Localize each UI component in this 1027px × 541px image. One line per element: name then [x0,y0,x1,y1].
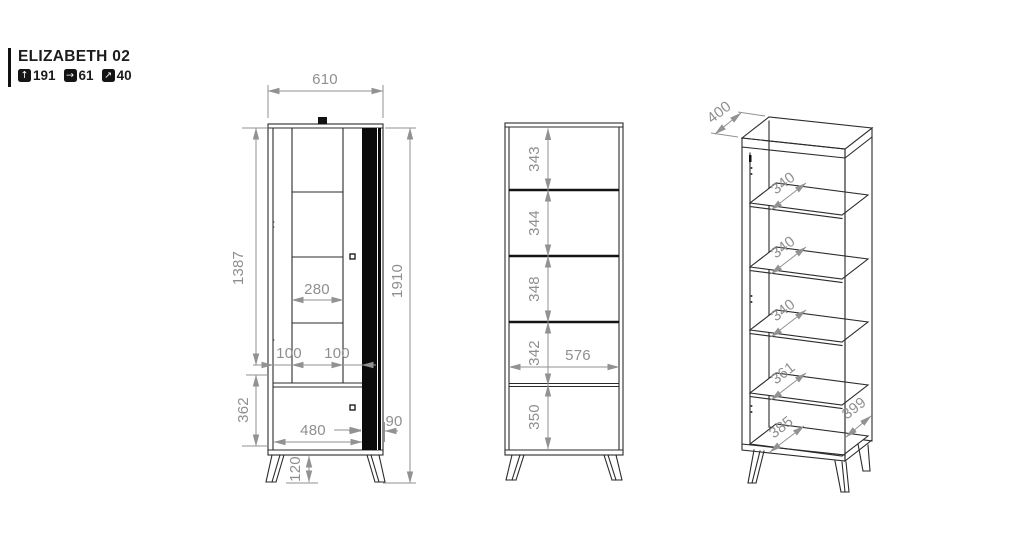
open-view: 343 344 348 342 350 576 [505,123,623,480]
iso-view: 400 340 340 340 361 385 399 [704,98,872,492]
dim-section-4: 342 [526,340,543,366]
front-legs [266,455,385,482]
dim-bottom-height: 362 [235,397,252,423]
dim-width-top: 610 [312,71,338,88]
dim-section-3: 348 [526,276,543,302]
cabinet-body-open [505,123,623,455]
dim-section-1: 343 [526,146,543,172]
dim-gap-right: 100 [324,345,350,362]
dim-inner-width: 576 [565,347,591,364]
dim-total-height: 1910 [389,264,406,298]
drawing-canvas: 610 1910 1387 362 100 100 [0,0,1027,541]
dim-section-2: 344 [526,210,543,236]
top-tab [318,117,327,124]
front-view: 610 1910 1387 362 100 100 [230,71,416,483]
dim-strip-width: 90 [385,413,402,430]
shelf-pin-dots [751,167,753,413]
open-legs [506,455,622,480]
dim-leg-height: 120 [287,456,304,482]
dim-glass-width: 280 [304,281,330,298]
dim-gap-left: 100 [276,345,302,362]
dim-top-depth: 400 [704,98,735,127]
drawing-sheet: ELIZABETH 02 ↑ 191 → 61 ↗ 40 [0,0,1027,541]
door-handle-upper [350,254,355,259]
dim-bottom-width: 480 [300,422,326,439]
hinge-mark [749,155,752,162]
dim-glass-height: 1387 [230,251,247,285]
dark-glass-strip [362,128,381,450]
dim-section-5: 350 [526,404,543,430]
door-handle-lower [350,405,355,410]
